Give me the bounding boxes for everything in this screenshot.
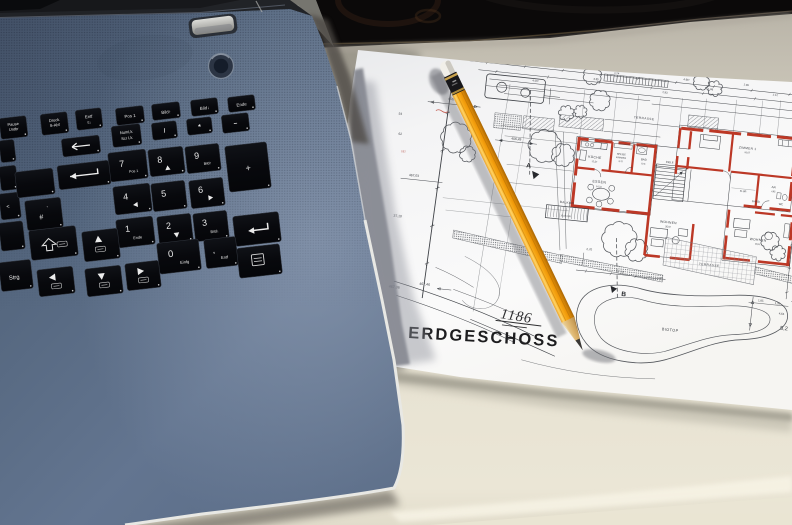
svg-text:2.93: 2.93 (662, 90, 668, 95)
svg-text:2.12: 2.12 (773, 93, 779, 98)
svg-text:62: 62 (398, 132, 402, 136)
svg-text:BAD: BAD (641, 157, 647, 162)
svg-text:54: 54 (398, 112, 402, 116)
svg-text:<: < (6, 204, 10, 210)
svg-text:Einfg: Einfg (180, 259, 190, 265)
svg-text:WC: WC (779, 202, 784, 206)
svg-text:Strg: Strg (9, 275, 20, 282)
svg-text:2.36: 2.36 (743, 83, 749, 88)
svg-text:2,70: 2,70 (586, 247, 593, 252)
svg-text:4.66¹: 4.66¹ (683, 77, 690, 82)
svg-text:3.55: 3.55 (593, 77, 599, 82)
svg-text:1,50: 1,50 (775, 301, 781, 306)
svg-text:DIELE: DIELE (666, 160, 674, 165)
svg-text:5,2: 5,2 (780, 326, 788, 333)
svg-text:182: 182 (401, 149, 407, 154)
svg-text:7,72: 7,72 (618, 269, 625, 274)
svg-text:1,85: 1,85 (758, 298, 764, 303)
svg-text:Entf: Entf (85, 114, 94, 120)
svg-text:+: + (245, 163, 251, 174)
svg-text:4,64: 4,64 (779, 311, 785, 316)
